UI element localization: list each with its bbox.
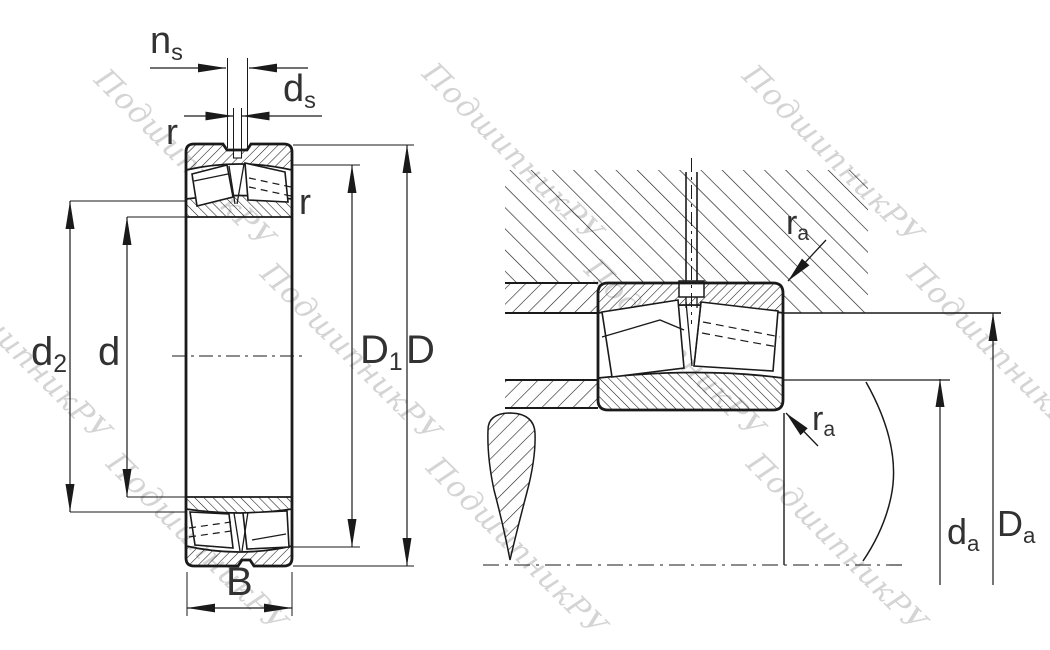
dim-label-r-top: r — [166, 114, 178, 150]
dim-label-r-right: r — [299, 184, 311, 220]
right-view-mounting — [483, 158, 1001, 585]
technical-drawing-spherical-roller-bearing: ПодшипникРУ ПодшипникРУ ПодшипникРУ Подш… — [0, 0, 1050, 650]
dimension-D1 — [293, 165, 360, 547]
dimension-Da — [989, 313, 998, 585]
shaft-shoulder-section — [505, 380, 598, 408]
dim-label-d2: d2 — [31, 332, 67, 372]
dim-label-B: B — [226, 562, 253, 602]
dim-label-D: D — [406, 330, 435, 370]
dim-label-Da: Da — [997, 506, 1035, 542]
shaft-end-curve — [863, 382, 894, 561]
dim-label-ns: ns — [150, 22, 183, 60]
dimension-d2 — [66, 201, 187, 512]
dim-label-D1: D1 — [360, 330, 403, 370]
cover-ring-section — [505, 283, 598, 313]
drawing-canvas — [0, 0, 1050, 650]
dim-label-ds: ds — [283, 70, 316, 108]
dim-label-d: d — [98, 332, 120, 372]
left-view-bearing-section — [172, 144, 306, 566]
rollers-bottom — [190, 511, 289, 549]
dimension-d — [123, 217, 187, 497]
shaft-undercut — [488, 413, 535, 560]
inner-ring-section-right-view — [598, 373, 783, 411]
dim-label-da: da — [947, 514, 979, 550]
dim-label-ra-lower: ra — [812, 402, 835, 436]
dimension-da — [936, 379, 945, 585]
dim-label-ra-upper: ra — [786, 206, 809, 240]
